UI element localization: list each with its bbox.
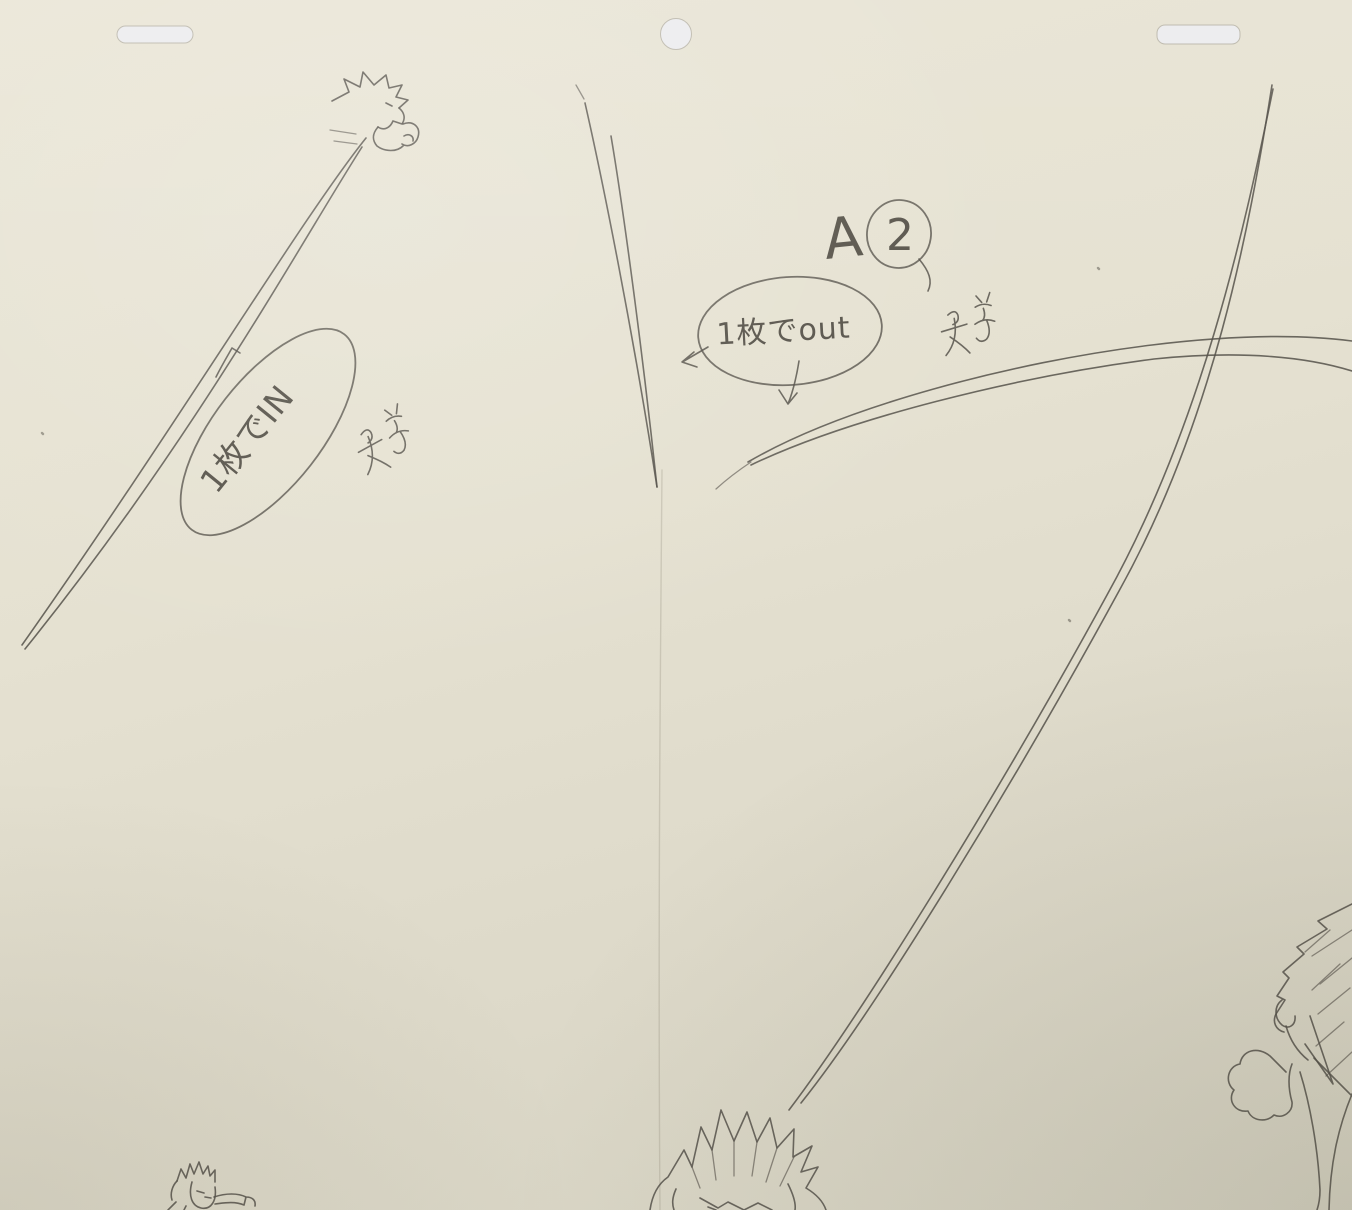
peg-hole-center	[661, 19, 692, 50]
small-figure-hair	[177, 1162, 215, 1182]
flying-figure-body	[373, 123, 418, 151]
shot-label-letter: A	[821, 204, 866, 273]
motion-trail-line-2	[25, 147, 362, 649]
center-head-hair	[650, 1110, 826, 1210]
swoosh-arc-line-2	[751, 355, 1352, 465]
sketch-canvas: 1枚でIN A 2 1枚でout	[0, 0, 1352, 1210]
motion-trail-line-1	[22, 138, 366, 645]
flying-figure-hair	[332, 72, 408, 108]
right-figure-jaw	[1286, 1026, 1308, 1060]
taper-motion-line-1	[585, 103, 657, 487]
left-arrowhead	[682, 347, 708, 367]
animation-paper-photo: 1枚でIN A 2 1枚でout	[0, 0, 1352, 1210]
swoosh-arc-tail	[716, 462, 751, 489]
right-figure-fist	[1228, 1050, 1292, 1119]
peg-slot-right	[1157, 25, 1240, 44]
down-arrow	[779, 361, 799, 404]
pencil-sketch: 1枚でIN A 2 1枚でout	[22, 72, 1352, 1210]
taper-motion-line-2	[611, 136, 657, 487]
paper-crease	[659, 470, 662, 1210]
small-figure-face	[171, 1181, 215, 1208]
peg-slot-left	[117, 26, 193, 43]
peg-holes	[117, 19, 1240, 50]
small-figure-arm	[168, 1194, 255, 1210]
shot-label-circle-tail	[919, 259, 930, 291]
flying-figure-speed-lines	[330, 130, 357, 144]
right-figure-ear	[1276, 1000, 1295, 1027]
shot-label-number: 2	[886, 210, 914, 261]
center-head-hair-strands	[692, 1141, 794, 1188]
beam-arc-line-1	[801, 85, 1272, 1103]
dust-specks	[42, 268, 1099, 621]
scribble-annotation-left	[348, 403, 417, 475]
scribble-annotation-right	[938, 292, 998, 355]
center-head-face	[673, 1184, 796, 1210]
taper-motion-line-dash	[576, 85, 584, 99]
out-note-label: 1枚でout	[716, 311, 852, 353]
right-figure-arm	[1300, 1058, 1352, 1210]
